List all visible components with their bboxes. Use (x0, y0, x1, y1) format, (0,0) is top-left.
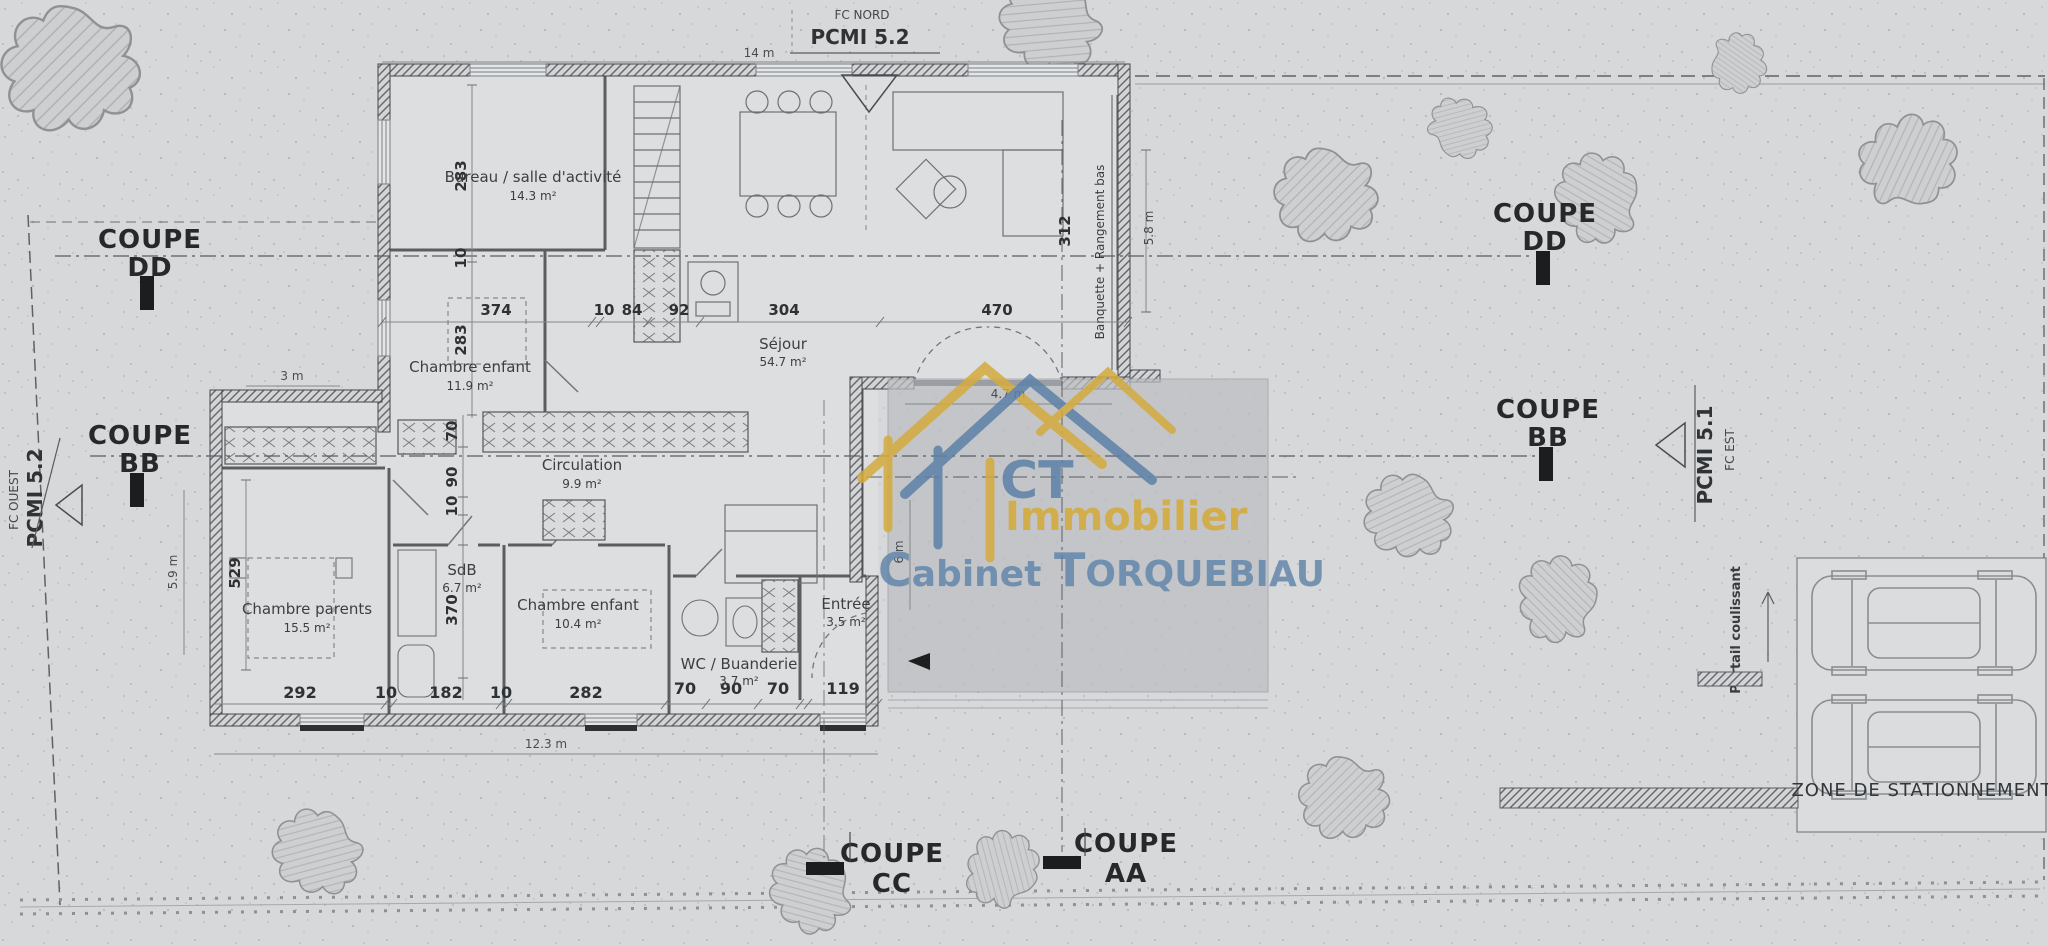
room-sdb: SdB 6.7 m² (442, 561, 482, 595)
svg-text:3.7 m²: 3.7 m² (719, 674, 759, 688)
watermark-torquebiau-rest: ORQUEBIAU (1085, 554, 1325, 595)
section-bar-cc (806, 862, 844, 875)
dim-v-529: 529 (226, 557, 244, 588)
section-bar-aa (1043, 856, 1081, 869)
dim-v-10b: 10 (443, 496, 461, 517)
svg-text:Circulation: Circulation (542, 456, 622, 474)
svg-text:Chambre enfant: Chambre enfant (517, 596, 639, 614)
svg-text:54.7 m²: 54.7 m² (759, 355, 806, 369)
dim-top-92: 92 (669, 301, 690, 319)
dim-14m: 14 m (744, 46, 775, 60)
banquette-label: Banquette + Rangement bas (1093, 165, 1107, 340)
svg-text:Séjour: Séjour (759, 335, 808, 353)
room-entree: Entrée 3.5 m² (821, 595, 870, 629)
floor-plan-page: 374 10 84 92 304 470 292 10 182 10 282 7… (0, 0, 2048, 946)
svg-text:14.3 m²: 14.3 m² (509, 189, 556, 203)
svg-text:Chambre parents: Chambre parents (242, 600, 372, 618)
dim-top-84: 84 (622, 301, 643, 319)
svg-text:COUPE: COUPE (98, 225, 202, 255)
svg-text:6.7 m²: 6.7 m² (442, 581, 482, 595)
watermark-cabinet-c: C (878, 543, 912, 597)
svg-text:Chambre enfant: Chambre enfant (409, 358, 531, 376)
pcmi-est-label: PCMI 5.1 (1693, 405, 1717, 504)
dim-bot-10a: 10 (375, 683, 397, 702)
dim-bot-70b: 70 (767, 679, 789, 698)
dim-top-374: 374 (480, 301, 511, 319)
dim-v-312: 312 (1056, 215, 1074, 246)
dim-bot-182: 182 (429, 683, 462, 702)
svg-text:15.5 m²: 15.5 m² (283, 621, 330, 635)
dim-v-90: 90 (443, 467, 461, 488)
parking-zone-label: ZONE DE STATIONNEMENT (1791, 780, 2048, 801)
site-plan-drawing: 374 10 84 92 304 470 292 10 182 10 282 7… (0, 0, 2048, 946)
svg-text:11.9 m²: 11.9 m² (446, 379, 493, 393)
section-bar-dd-right (1536, 251, 1550, 285)
dim-v-370: 370 (443, 594, 461, 625)
section-bar-dd-left (140, 276, 154, 310)
fc-nord-label: FC NORD (834, 8, 889, 22)
dim-bot-292: 292 (283, 683, 316, 702)
svg-text:COUPE: COUPE (88, 421, 192, 451)
svg-text:WC / Buanderie: WC / Buanderie (681, 655, 798, 673)
dim-5-9m: 5.9 m (166, 555, 180, 590)
dim-bot-10b: 10 (490, 683, 512, 702)
dim-bot-282: 282 (569, 683, 602, 702)
svg-text:COUPE: COUPE (1493, 199, 1597, 229)
svg-text:Entrée: Entrée (821, 595, 870, 613)
section-bar-bb-right (1539, 447, 1553, 481)
watermark-torquebiau-t: T (1054, 543, 1086, 597)
dim-v-283b: 283 (452, 324, 470, 355)
dim-5-8m: 5.8 m (1142, 211, 1156, 246)
section-bar-bb-left (130, 473, 144, 507)
svg-text:CC: CC (872, 869, 912, 899)
dim-top-304: 304 (768, 301, 799, 319)
svg-text:Bureau / salle d'activité: Bureau / salle d'activité (445, 168, 622, 186)
svg-text:9.9 m²: 9.9 m² (562, 477, 602, 491)
pcmi-nord-label: PCMI 5.2 (810, 25, 909, 49)
fc-ouest-label: FC OUEST (7, 469, 21, 530)
dim-top-470: 470 (981, 301, 1012, 319)
watermark-immobilier: Immobilier (1005, 494, 1248, 540)
room-sejour: Séjour 54.7 m² (759, 335, 808, 369)
fc-est-label: FC EST (1723, 429, 1737, 471)
svg-text:3.5 m²: 3.5 m² (826, 615, 866, 629)
dim-v-10: 10 (452, 248, 470, 269)
dim-bot-70a: 70 (674, 679, 696, 698)
dim-bot-119: 119 (826, 679, 859, 698)
svg-text:COUPE: COUPE (840, 839, 944, 869)
svg-text:10.4 m²: 10.4 m² (554, 617, 601, 631)
svg-text:AA: AA (1105, 859, 1147, 889)
dim-v-70: 70 (443, 421, 461, 442)
svg-text:COUPE: COUPE (1074, 829, 1178, 859)
dim-12-3m: 12.3 m (525, 737, 567, 751)
dim-3m: 3 m (280, 369, 303, 383)
svg-text:SdB: SdB (447, 561, 476, 579)
watermark-cabinet-rest: abinet (912, 554, 1054, 595)
dim-top-10: 10 (594, 301, 615, 319)
pcmi-ouest-label: PCMI 5.2 (23, 448, 47, 547)
svg-text:COUPE: COUPE (1496, 395, 1600, 425)
